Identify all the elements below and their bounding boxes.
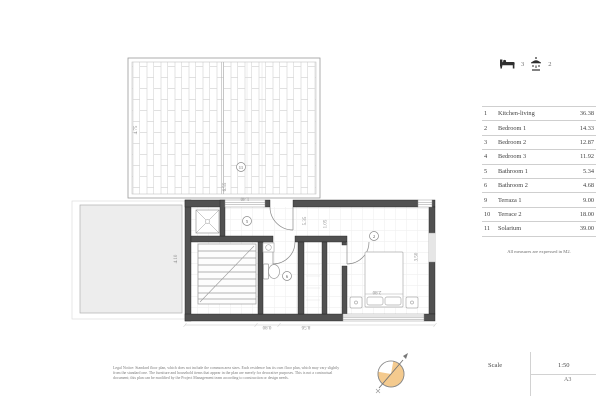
compass-north-icon <box>376 353 408 393</box>
marker-bathroom1: 5 <box>243 217 252 226</box>
area-row: 11 Solarium 39.00 <box>482 222 596 236</box>
room-number: 6 <box>482 182 498 189</box>
room-area: 18.00 <box>570 211 596 218</box>
room-name: Terraza 1 <box>498 197 570 204</box>
dim-bedroom-depth: 3.50 <box>415 252 420 261</box>
room-area: 14.33 <box>570 125 596 132</box>
room-number: 1 <box>482 110 498 117</box>
toilet-icon <box>264 264 280 279</box>
area-row: 3 Bedroom 2 12.87 <box>482 136 596 150</box>
sheet-size: A3 <box>564 377 571 383</box>
legal-disclaimer: Legal Notice: Standard floor plan, which… <box>113 366 365 381</box>
room-name: Bedroom 1 <box>498 125 570 132</box>
room-number: 5 <box>482 168 498 175</box>
area-row: 1 Kitchen-living 36.38 <box>482 107 596 121</box>
shower-tray-icon <box>196 210 219 233</box>
area-row: 4 Bedroom 3 11.92 <box>482 150 596 164</box>
bed-icon <box>500 59 515 69</box>
dim-door-width: 0.80 <box>262 324 271 329</box>
room-name: Solarium <box>498 225 570 232</box>
room-area: 12.87 <box>570 139 596 146</box>
sink-icon <box>263 243 274 252</box>
room-name: Bedroom 3 <box>498 153 570 160</box>
marker-bedroom1: 2 <box>370 232 379 241</box>
dim-hall-depth: 5.35 <box>303 216 308 225</box>
marker-bathroom2: 6 <box>283 272 292 281</box>
room-number: 11 <box>482 225 498 232</box>
scale-label: Scale <box>488 362 502 369</box>
dim-solarium-height: 4.75 <box>134 125 139 134</box>
area-table: 1 Kitchen-living 36.38 2 Bedroom 1 14.33… <box>482 106 596 237</box>
area-row: 2 Bedroom 1 14.33 <box>482 121 596 135</box>
room-area: 5.34 <box>570 168 596 175</box>
area-row: 6 Bathroom 2 4.68 <box>482 179 596 193</box>
room-name: Bathroom 2 <box>498 182 570 189</box>
marker-solarium: 11 <box>237 163 246 172</box>
terrace-2 <box>72 201 185 319</box>
dim-top-window: 1.40 <box>240 196 249 201</box>
disclaimer-line: document; this plan can be modified by t… <box>113 376 365 381</box>
room-number: 9 <box>482 197 498 204</box>
area-row: 10 Terrace 2 18.00 <box>482 208 596 222</box>
solarium-roof-terrace <box>128 58 320 198</box>
room-name: Bathroom 1 <box>498 168 570 175</box>
room-name: Kitchen-living <box>498 110 570 117</box>
room-number: 2 <box>482 125 498 132</box>
staircase <box>198 244 256 304</box>
dim-bed-width: 2.80 <box>372 289 381 294</box>
room-area: 9.00 <box>570 197 596 204</box>
room-area: 11.92 <box>570 153 596 160</box>
room-number: 3 <box>482 139 498 146</box>
bedrooms-count: 3 <box>521 61 524 68</box>
dim-solarium-width: 6.55 <box>223 182 228 191</box>
room-name: Terrace 2 <box>498 211 570 218</box>
svg-text:11: 11 <box>239 165 244 170</box>
title-block-rule <box>530 374 596 375</box>
area-row: 9 Terraza 1 9.00 <box>482 193 596 207</box>
scale-value: 1:50 <box>558 362 570 369</box>
room-area: 36.38 <box>570 110 596 117</box>
room-area: 4.68 <box>570 182 596 189</box>
shower-icon <box>530 57 542 71</box>
room-area: 39.00 <box>570 225 596 232</box>
room-name: Bedroom 2 <box>498 139 570 146</box>
measures-note: All measures are expressed in M2. <box>482 249 596 254</box>
dim-terrace-side: 4.10 <box>174 254 179 263</box>
area-row: 5 Bathroom 1 5.34 <box>482 165 596 179</box>
summary-icons: 3 2 <box>500 55 570 73</box>
room-number: 4 <box>482 153 498 160</box>
dim-closet-width: 1.05 <box>324 219 329 228</box>
room-number: 10 <box>482 211 498 218</box>
bathrooms-count: 2 <box>548 61 551 68</box>
dim-total-width: 8.56 <box>301 324 310 329</box>
